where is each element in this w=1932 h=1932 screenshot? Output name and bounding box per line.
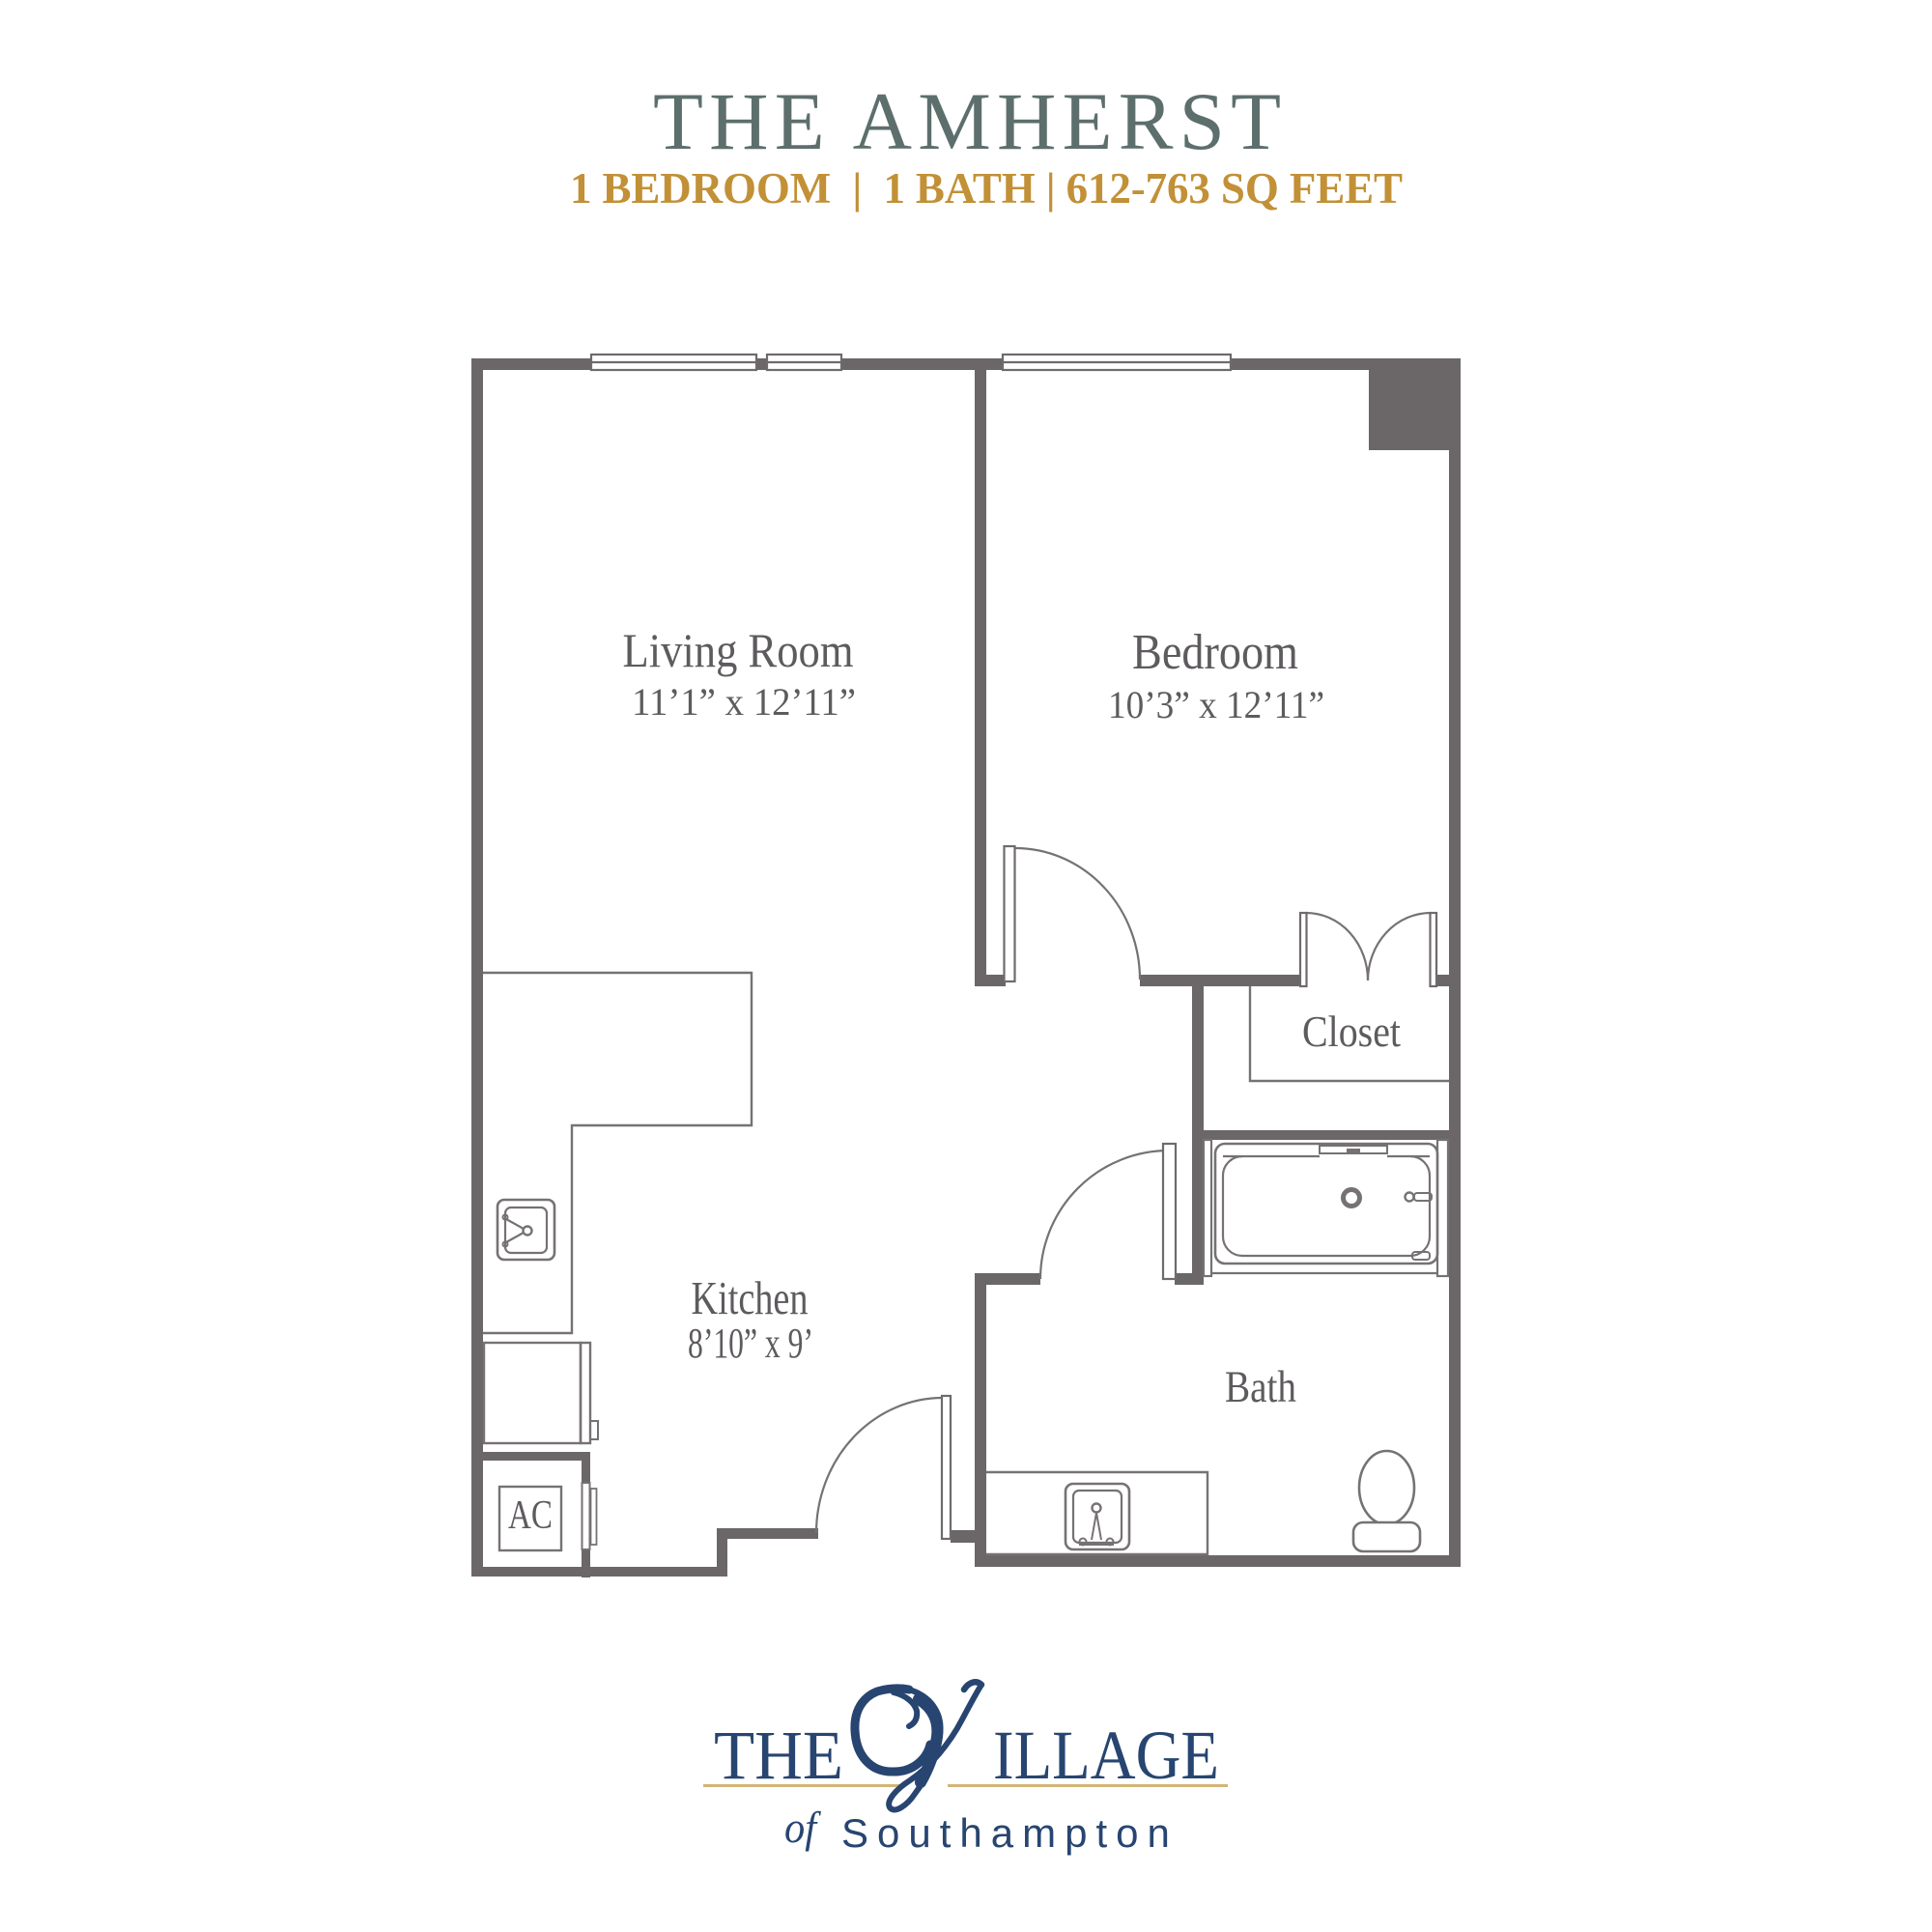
- svg-text:Kitchen: Kitchen: [692, 1271, 809, 1324]
- svg-text:11’1” x 12’11”: 11’1” x 12’11”: [632, 680, 856, 724]
- svg-text:THE: THE: [714, 1717, 843, 1794]
- svg-text:Southampton: Southampton: [841, 1810, 1179, 1856]
- svg-text:Bath: Bath: [1225, 1362, 1296, 1412]
- svg-text:1 BEDROOM | 1 BATH | 612-763: 1 BEDROOM | 1 BATH | 612-763 SQ FEET: [570, 164, 1403, 213]
- svg-text:ILLAGE: ILLAGE: [993, 1717, 1219, 1794]
- svg-text:Closet: Closet: [1302, 1008, 1401, 1056]
- svg-text:AC: AC: [508, 1493, 553, 1538]
- svg-text:of: of: [784, 1803, 822, 1852]
- svg-text:Bedroom: Bedroom: [1132, 625, 1298, 680]
- svg-text:Living Room: Living Room: [623, 623, 854, 677]
- svg-text:8’10” x 9’: 8’10” x 9’: [688, 1320, 813, 1367]
- svg-text:THE AMHERST: THE AMHERST: [653, 76, 1281, 167]
- svg-text:10’3” x 12’11”: 10’3” x 12’11”: [1108, 683, 1324, 726]
